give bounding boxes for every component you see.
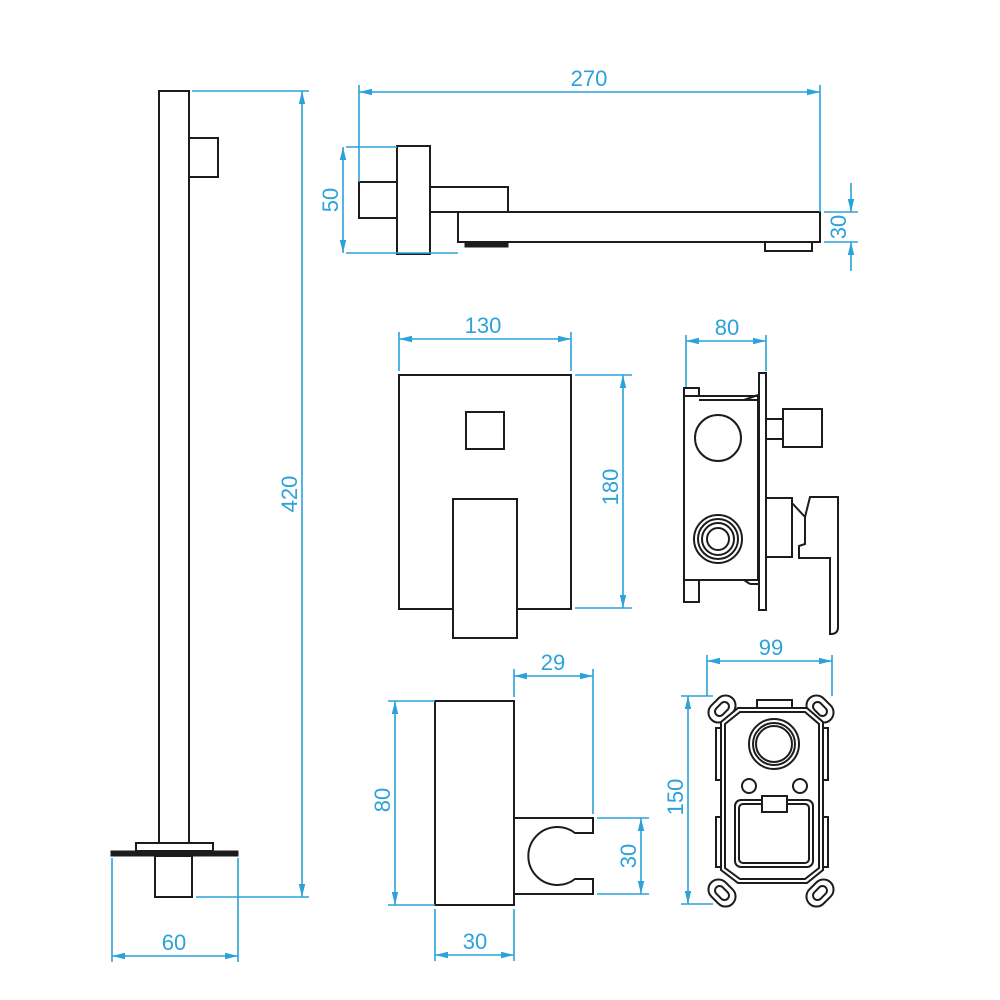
shower-arm-bar [159, 91, 189, 843]
view-spout: 270 50 30 [318, 66, 858, 271]
holder-clip [514, 818, 593, 894]
spout-connector-square [359, 182, 397, 218]
drawing-svg: 420 60 270 50 [0, 0, 1000, 1000]
shower-arm-flange [136, 843, 213, 851]
box-screw-hole-left [742, 779, 756, 793]
holder-body [435, 701, 514, 905]
view-holder: 29 80 30 30 [370, 650, 649, 961]
dim-99: 99 [707, 635, 832, 696]
view-rough-in-box: 99 150 [663, 635, 838, 911]
valve-lever-handle [799, 497, 838, 634]
dim-130: 130 [399, 313, 571, 371]
dim-label-80-holder: 80 [370, 788, 395, 812]
valve-lever-stem [766, 498, 792, 557]
dim-label-180: 180 [598, 469, 623, 506]
dim-label-30-base: 30 [463, 929, 487, 954]
mixer-lever [453, 499, 517, 638]
valve-upper-port [695, 415, 741, 461]
valve-trim-plate-edge [759, 373, 766, 610]
dim-80-holder: 80 [370, 701, 435, 905]
dim-label-50: 50 [318, 188, 343, 212]
dim-420: 420 [192, 91, 309, 897]
dim-29: 29 [514, 650, 593, 814]
spout-wall-plate [397, 146, 430, 254]
valve-button-stem [766, 419, 783, 439]
dim-150: 150 [663, 696, 713, 904]
shower-arm-lower-block [155, 856, 192, 897]
dim-30-clip: 30 [597, 818, 649, 894]
view-mixer-side: 80 [684, 315, 838, 634]
dim-label-30-clip: 30 [616, 844, 641, 868]
dim-label-150: 150 [663, 779, 688, 816]
dim-label-270: 270 [571, 66, 608, 91]
spout-left-foot [465, 242, 508, 247]
dim-label-80-valve: 80 [715, 315, 739, 340]
dim-180: 180 [575, 375, 632, 608]
shower-arm-tab [189, 138, 218, 177]
valve-button [783, 409, 822, 447]
mixer-diverter-button [466, 412, 504, 449]
dim-label-99: 99 [759, 635, 783, 660]
box-window-tab [762, 796, 787, 812]
dim-30-base: 30 [435, 909, 514, 961]
spout-right-foot [765, 242, 812, 251]
spout-inlet-arm [430, 187, 508, 212]
dim-label-60: 60 [162, 930, 186, 955]
box-port-ring-3 [756, 726, 792, 762]
valve-cartridge-ring-4 [707, 528, 729, 550]
dim-30-spout: 30 [824, 183, 858, 271]
dim-label-130: 130 [465, 313, 502, 338]
dim-label-29: 29 [541, 650, 565, 675]
dim-label-30-spout: 30 [826, 215, 851, 239]
view-shower-arm: 420 60 [111, 91, 309, 962]
dim-80-valve: 80 [686, 315, 766, 387]
technical-drawing-canvas: 420 60 270 50 [0, 0, 1000, 1000]
dim-label-420: 420 [277, 476, 302, 513]
box-screw-hole-right [793, 779, 807, 793]
spout-body [458, 212, 820, 242]
view-mixer-front: 130 180 [399, 313, 632, 638]
